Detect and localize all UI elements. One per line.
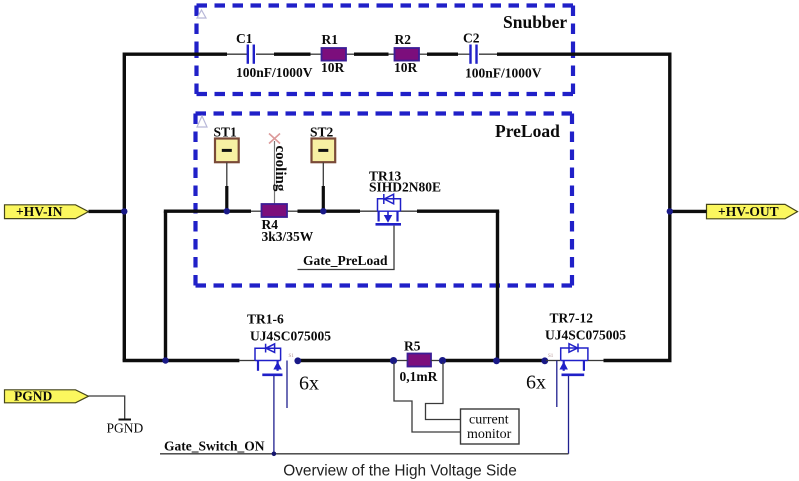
svg-text:Overview of the High Voltage S: Overview of the High Voltage Side [283,463,517,480]
svg-text:ST1: ST1 [214,125,238,140]
svg-text:100nF/1000V: 100nF/1000V [236,65,313,80]
svg-text:cooling: cooling [272,146,288,192]
svg-text:SIHD2N80E: SIHD2N80E [369,180,441,195]
svg-text:PreLoad: PreLoad [495,121,560,141]
svg-text:PGND: PGND [14,389,52,404]
svg-text:6x: 6x [526,372,546,394]
svg-text:6x: 6x [299,373,319,395]
svg-text:R2: R2 [395,32,412,47]
svg-text:Gate_PreLoad: Gate_PreLoad [303,253,388,268]
svg-text:ST2: ST2 [310,125,334,140]
svg-text:C1: C1 [236,31,253,46]
svg-text:R1: R1 [322,32,339,47]
svg-text:R5: R5 [404,339,421,354]
svg-text:TR7-12: TR7-12 [550,311,594,326]
svg-text:Snubber: Snubber [503,12,567,32]
svg-text:monitor: monitor [467,427,512,442]
svg-text:S1: S1 [289,354,295,359]
svg-text:+HV-IN: +HV-IN [16,204,63,219]
svg-text:C2: C2 [463,31,480,46]
svg-text:UJ4SC075005: UJ4SC075005 [250,329,331,344]
svg-text:UJ4SC075005: UJ4SC075005 [545,328,626,343]
svg-text:3k3/35W: 3k3/35W [262,229,314,244]
svg-text:current: current [469,413,509,428]
svg-text:PGND: PGND [107,421,144,436]
svg-text:100nF/1000V: 100nF/1000V [465,66,542,81]
svg-text:Gate_Switch_ON: Gate_Switch_ON [164,439,265,454]
svg-text:10R: 10R [321,60,345,75]
svg-text:0,1mR: 0,1mR [400,369,438,384]
svg-text:+HV-OUT: +HV-OUT [718,204,779,219]
svg-text:10R: 10R [394,60,418,75]
svg-text:TR1-6: TR1-6 [247,312,284,327]
svg-text:S1: S1 [548,354,554,359]
